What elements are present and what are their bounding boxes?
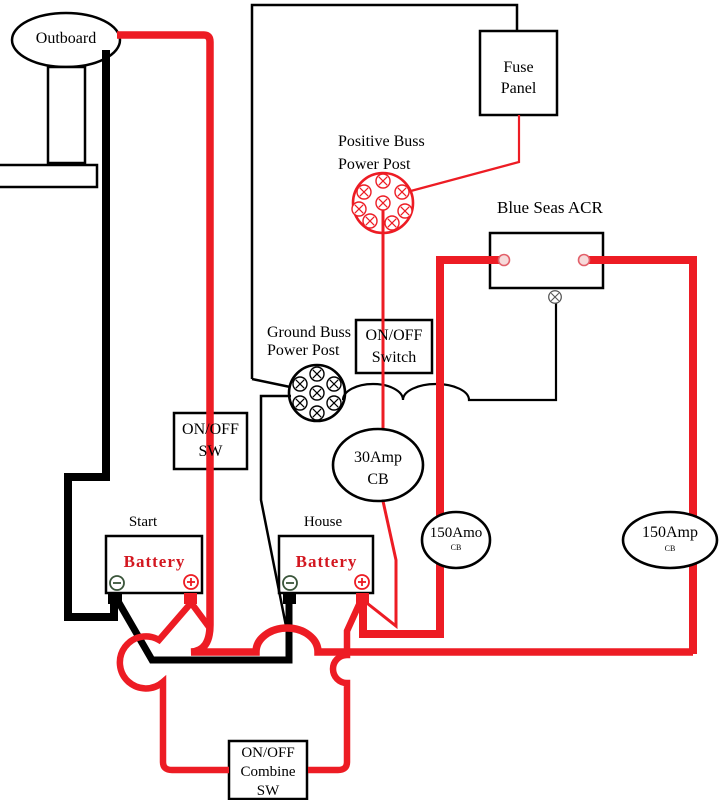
positive-buss-label: Positive Buss Power Post [338, 130, 425, 176]
cb-150-right-sub: CB [623, 545, 717, 553]
acr-terminal-right [579, 255, 590, 266]
outboard-midsection [48, 67, 85, 163]
wiring-diagram-canvas [0, 0, 719, 800]
on-off-sw-label: ON/OFF SW [174, 419, 247, 463]
on-off-sw-line2: SW [174, 441, 247, 463]
cb-30amp-line1: 30Amp [333, 447, 423, 469]
positive-wire-combine-right [308, 598, 362, 770]
positive-buss-line1: Positive Buss [338, 130, 425, 153]
combine-sw-label: ON/OFF Combine SW [229, 744, 307, 800]
wiring-diagram: Outboard Fuse Panel Positive Buss Power … [0, 0, 719, 800]
outboard-label: Outboard [12, 31, 120, 48]
house-battery-group-label: House [292, 515, 354, 531]
start-minus-stub [108, 593, 122, 604]
cb-30amp-label: 30Amp CB [333, 447, 423, 491]
ground-buss-line1: Ground Buss [267, 324, 351, 342]
combine-sw-line1: ON/OFF [229, 744, 307, 763]
fuse-panel-line2: Panel [480, 78, 557, 99]
start-minus-terminal [110, 576, 124, 590]
ground-buss-label: Ground Buss Power Post [267, 324, 351, 359]
ground-buss-line2: Power Post [267, 342, 351, 360]
house-minus-stub [283, 593, 296, 604]
start-battery-group-label: Start [112, 515, 174, 531]
battery-terminal-stubs [108, 593, 369, 604]
cb-30amp-line2: CB [333, 469, 423, 491]
on-off-switch-line1: ON/OFF [356, 325, 432, 347]
start-plus-stub [184, 593, 197, 604]
house-battery-label: Battery [280, 553, 373, 571]
start-battery-label: Battery [107, 553, 202, 571]
acr-terminal-left [499, 255, 510, 266]
combine-sw-line3: SW [229, 782, 307, 800]
positive-buss-line2: Power Post [338, 153, 425, 176]
fuse-panel-label: Fuse Panel [480, 57, 557, 99]
cb-150-right-label: 150Amp [623, 525, 717, 542]
positive-wire-acr-right [584, 260, 693, 654]
on-off-switch-label: ON/OFF Switch [356, 325, 432, 369]
outboard-lower-unit [0, 165, 97, 187]
fuse-panel-line1: Fuse [480, 57, 557, 78]
house-minus-terminal [283, 576, 297, 590]
on-off-switch-line2: Switch [356, 347, 432, 369]
cb-150-left-sub: CB [414, 544, 498, 552]
house-plus-terminal [355, 575, 369, 589]
cb-150-left-label: 150Amo [414, 526, 498, 542]
start-plus-terminal [184, 575, 198, 589]
on-off-sw-line1: ON/OFF [174, 419, 247, 441]
acr-label: Blue Seas ACR [497, 199, 603, 217]
acr-ground-screw [549, 291, 562, 304]
combine-sw-line2: Combine [229, 763, 307, 782]
